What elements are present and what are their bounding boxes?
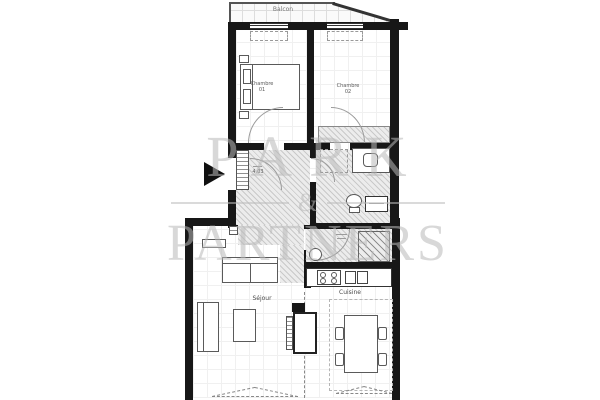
balcony-railing-left xyxy=(229,2,231,23)
wall xyxy=(392,218,400,400)
wall xyxy=(307,30,314,145)
wall xyxy=(236,143,264,150)
tv-unit-cap xyxy=(292,303,305,312)
dining-table xyxy=(344,315,378,373)
chair xyxy=(378,327,387,340)
sofa-cushion-line xyxy=(250,263,251,283)
balcony-label: Balcon xyxy=(258,7,308,14)
chair xyxy=(335,353,344,366)
shower-room-text-mark xyxy=(337,238,346,239)
chair xyxy=(378,353,387,366)
curtain-box xyxy=(327,31,363,41)
bay-window xyxy=(212,396,298,397)
window-glazing xyxy=(250,25,288,26)
toilet-tank xyxy=(349,207,360,213)
entry-door-label: 4.03 xyxy=(248,170,268,176)
entrance-arrow-icon xyxy=(204,162,225,186)
washbasin-bowl xyxy=(363,153,378,167)
shower-room-text-mark xyxy=(336,234,347,235)
hall-floor xyxy=(280,245,304,283)
window xyxy=(250,23,288,29)
wall xyxy=(300,222,400,229)
bay-window xyxy=(336,393,392,394)
coffee-table xyxy=(233,309,256,342)
wall xyxy=(228,22,236,158)
wall xyxy=(390,19,399,225)
burner xyxy=(331,278,337,284)
loveseat-back-line xyxy=(203,302,204,352)
curtain-box xyxy=(250,31,288,41)
sink-bowl xyxy=(345,271,356,284)
hall-floor xyxy=(238,225,304,245)
bedroom-1-label: Chambre 01 xyxy=(238,82,286,94)
sink-bowl xyxy=(357,271,368,284)
shower xyxy=(358,231,390,262)
shelf xyxy=(229,226,238,235)
toilet xyxy=(346,194,362,208)
washing-machine xyxy=(365,196,388,212)
floor-plan: Balcon Chambre 01 Chambre 02 4.03 xyxy=(0,0,600,400)
tv-unit xyxy=(293,312,317,354)
window xyxy=(327,23,363,29)
bedroom-2-number: 02 xyxy=(345,89,351,95)
tv-unit-shelf xyxy=(286,316,293,350)
balcony-railing xyxy=(229,2,335,4)
radiator xyxy=(202,239,226,248)
mirror xyxy=(320,149,348,173)
window-glazing xyxy=(327,25,363,26)
burner xyxy=(320,278,326,284)
round-basin xyxy=(309,248,322,261)
nightstand xyxy=(239,55,249,63)
entry-door-text-mark xyxy=(253,166,262,167)
washing-machine-text-mark xyxy=(369,203,384,204)
living-room-label: Séjour xyxy=(238,296,286,303)
bedroom-1-number: 01 xyxy=(259,87,265,93)
kitchen-label: Cuisine xyxy=(326,290,374,297)
chair xyxy=(335,327,344,340)
nightstand xyxy=(239,111,249,119)
wall xyxy=(185,218,193,400)
loveseat xyxy=(197,302,219,352)
bedroom-2-label: Chambre 02 xyxy=(324,84,372,96)
